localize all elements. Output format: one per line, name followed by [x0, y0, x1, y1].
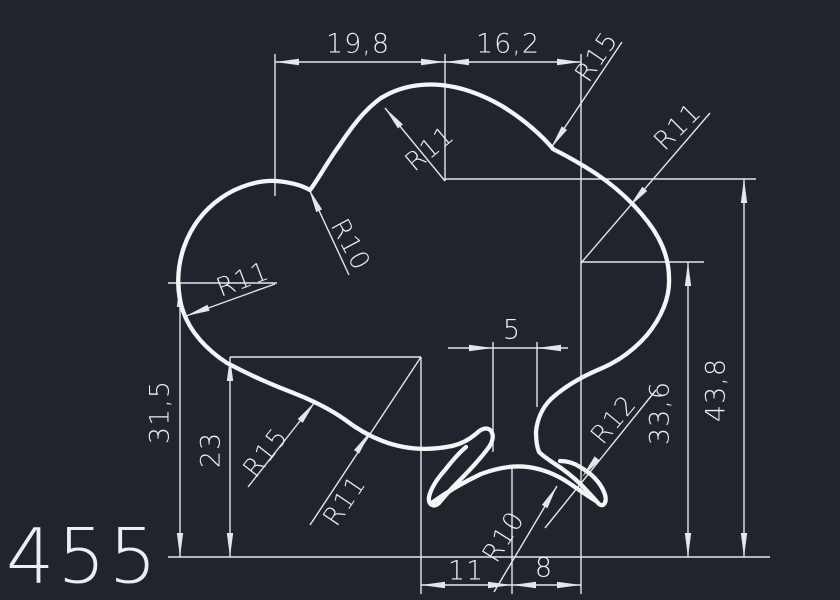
dim-label-33-6: 33,6	[645, 381, 676, 445]
technical-drawing: 19,816,2R15R11R11R10R1131,523R15R115R12R…	[0, 0, 840, 600]
dim-label-5: 5	[503, 315, 521, 346]
dim-label-23: 23	[196, 432, 227, 468]
drawing-background	[0, 0, 840, 600]
cad-canvas: 19,816,2R15R11R11R10R1131,523R15R115R12R…	[0, 0, 840, 600]
dim-label-16-2: 16,2	[476, 29, 540, 60]
dim-label-19-8: 19,8	[326, 29, 390, 60]
dim-label-31-5: 31,5	[145, 380, 176, 444]
dim-label-43-8: 43,8	[701, 358, 732, 422]
dim-label-11: 11	[448, 556, 484, 587]
part-number: 455	[6, 512, 160, 600]
dim-label-8: 8	[535, 553, 553, 584]
